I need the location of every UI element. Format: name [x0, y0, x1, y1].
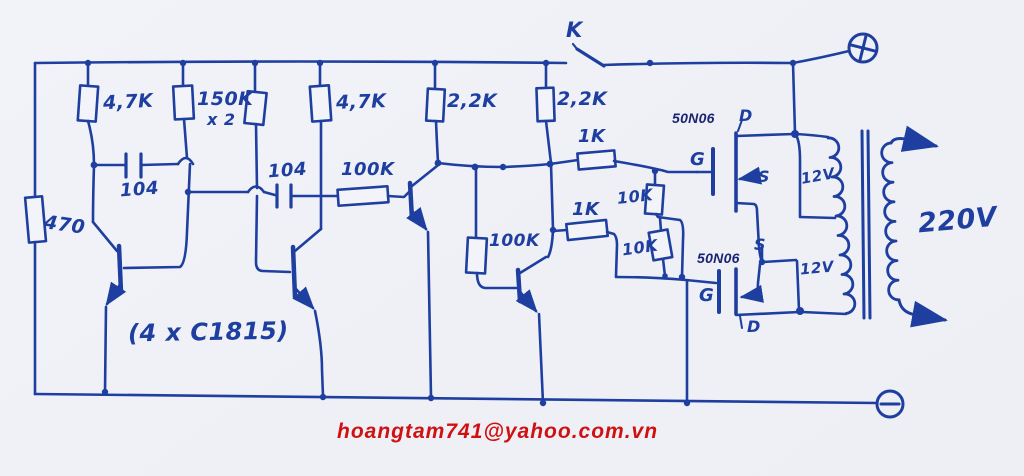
transformer-core: [862, 131, 870, 318]
label-resistor-100k-mid: 100K: [489, 233, 540, 250]
label-resistor-2k2-a: 2,2K: [447, 92, 497, 111]
label-resistor-4k7-b: 4,7K: [336, 92, 387, 113]
label-resistor-1k-b: 1K: [572, 201, 599, 219]
plus-terminal-icon: [848, 33, 877, 62]
mosfet-1: [697, 120, 794, 262]
label-resistor-470: 470: [43, 213, 86, 238]
label-transistor-group: (4 x C1815): [128, 319, 289, 346]
label-resistor-4k7-a: 4,7K: [103, 92, 154, 114]
power-switch: [573, 44, 604, 66]
label-output-voltage: 220V: [917, 204, 998, 238]
resistor-4k7-b: [310, 63, 331, 229]
transistor-q1: [93, 222, 121, 392]
resistor-150k-a: [173, 63, 194, 158]
transistor-q4: [518, 257, 546, 403]
label-resistor-1k-a: 1K: [578, 128, 605, 146]
resistor-2k2-a: [426, 63, 445, 162]
label-pin-d2: D: [747, 319, 761, 335]
label-pin-g2: G: [699, 287, 714, 305]
transistor-q2: [293, 229, 323, 396]
label-resistor-10k-a: 10K: [616, 187, 654, 207]
label-winding-b: 12V: [799, 260, 834, 278]
label-mosfet-b: 50N06: [697, 251, 740, 265]
label-resistor-150k: 150K: [197, 90, 253, 109]
label-resistor-100k-top: 100K: [341, 161, 395, 179]
bottom-rail-wire: [35, 394, 877, 403]
label-switch-k: K: [566, 20, 583, 41]
author-email: hoangtam741@yahoo.com.vn: [337, 421, 658, 442]
scanned-schematic-page: 470 4,7K 150K x 2 4,7K 2,2K 2,2K 104 104…: [0, 0, 1024, 476]
label-pin-s1: S: [758, 169, 770, 185]
label-pin-d1: D: [739, 108, 753, 124]
label-capacitor-104-a: 104: [119, 180, 159, 201]
top-rail-wire: [35, 51, 849, 65]
transistor-q3: [410, 166, 437, 397]
capacitor-104-a: [94, 154, 193, 177]
minus-terminal-icon: [877, 391, 903, 417]
coupling-line-2: [188, 185, 338, 207]
resistor-100k-mid: [466, 168, 516, 288]
resistor-4k7-a: [78, 63, 98, 222]
label-pin-g1: G: [690, 151, 705, 169]
label-capacitor-104-b: 104: [267, 161, 307, 182]
resistor-100k-top: [338, 186, 409, 205]
label-pin-s2: S: [754, 237, 766, 253]
label-resistor-2k2-b: 2,2K: [557, 90, 607, 109]
label-mosfet-a: 50N06: [672, 111, 715, 125]
label-resistor-150k-mult: x 2: [207, 112, 236, 128]
